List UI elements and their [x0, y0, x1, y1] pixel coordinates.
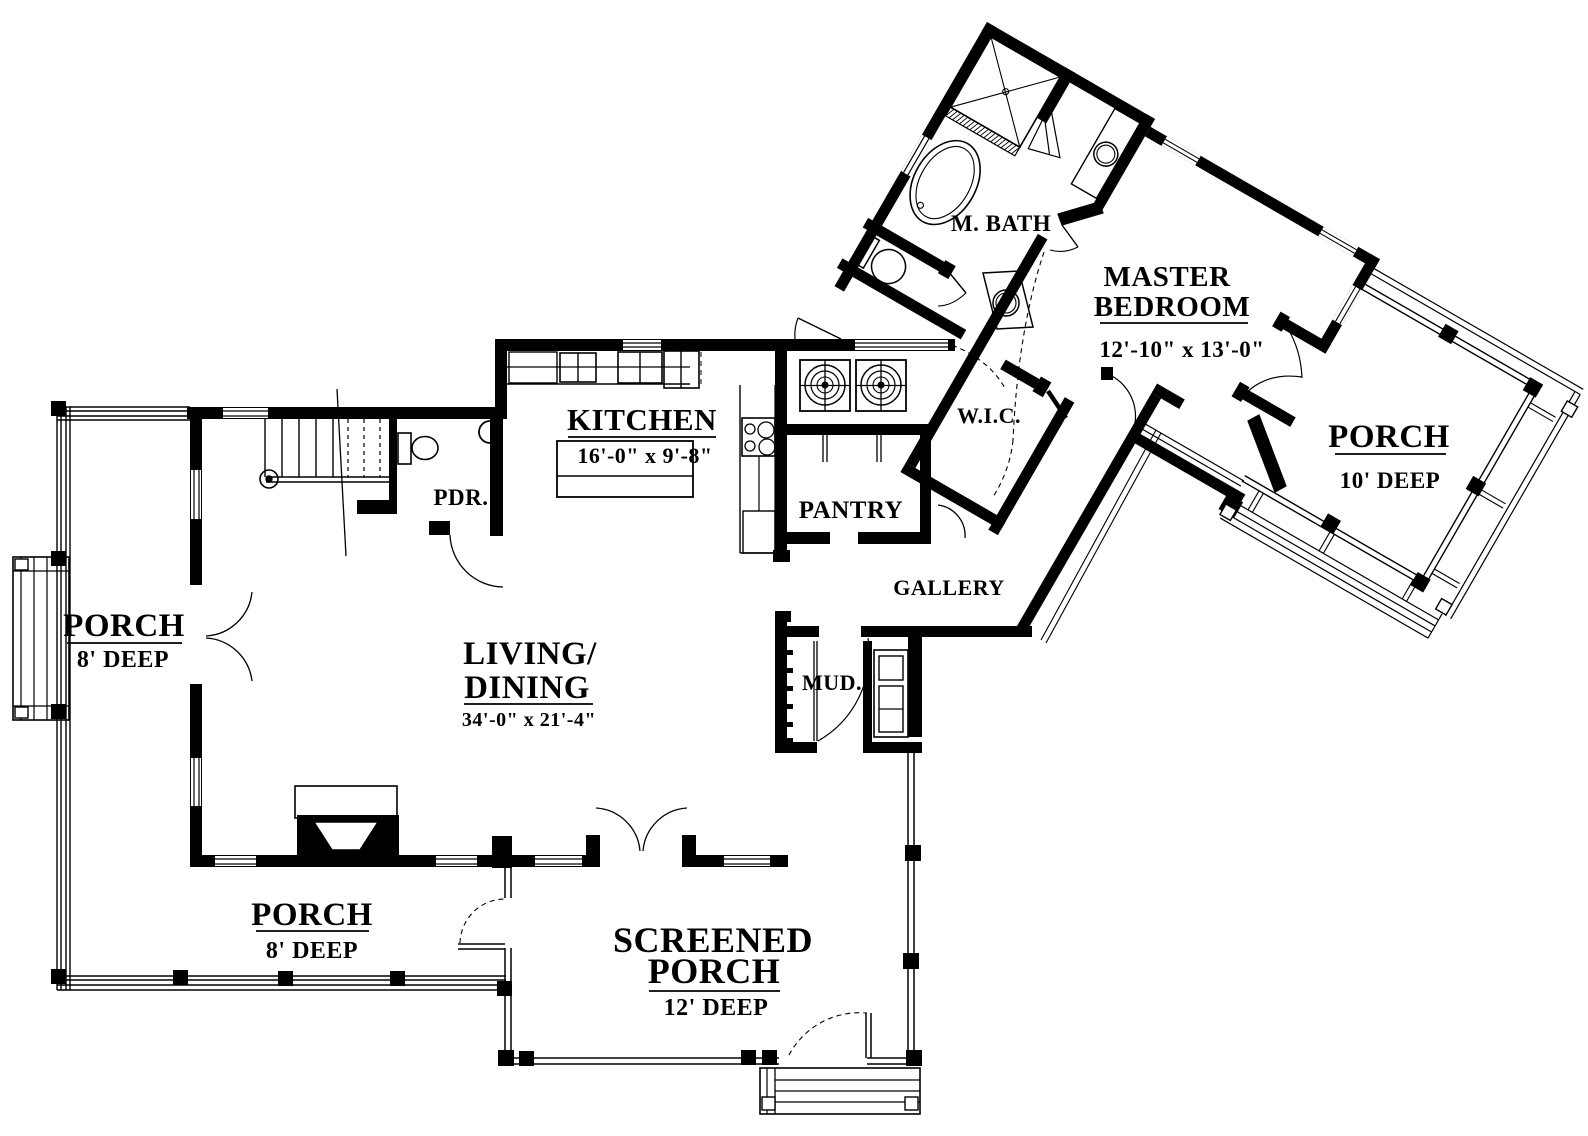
svg-text:LIVING/: LIVING/	[463, 636, 597, 672]
svg-text:PDR.: PDR.	[433, 485, 488, 510]
svg-text:12' DEEP: 12' DEEP	[664, 995, 769, 1021]
svg-text:16'-0" x 9'-8": 16'-0" x 9'-8"	[577, 443, 712, 468]
svg-text:GALLERY: GALLERY	[893, 575, 1005, 600]
svg-text:12'-10" x 13'-0": 12'-10" x 13'-0"	[1099, 337, 1264, 362]
svg-text:W.I.C.: W.I.C.	[957, 403, 1021, 428]
svg-text:8' DEEP: 8' DEEP	[77, 647, 169, 673]
svg-text:MASTER: MASTER	[1103, 261, 1231, 293]
svg-text:KITCHEN: KITCHEN	[567, 402, 717, 437]
svg-text:PORCH: PORCH	[648, 951, 781, 991]
svg-text:10' DEEP: 10' DEEP	[1340, 468, 1440, 493]
svg-text:34'-0" x 21'-4": 34'-0" x 21'-4"	[462, 709, 596, 731]
svg-text:PORCH: PORCH	[1328, 419, 1450, 455]
svg-text:PORCH: PORCH	[251, 897, 373, 933]
svg-text:DINING: DINING	[464, 670, 590, 706]
svg-text:M. BATH: M. BATH	[951, 211, 1051, 236]
svg-text:MUD.: MUD.	[802, 670, 862, 695]
svg-text:PORCH: PORCH	[63, 608, 185, 644]
svg-text:8' DEEP: 8' DEEP	[266, 938, 358, 964]
svg-text:BEDROOM: BEDROOM	[1094, 291, 1251, 323]
svg-text:PANTRY: PANTRY	[799, 497, 903, 524]
